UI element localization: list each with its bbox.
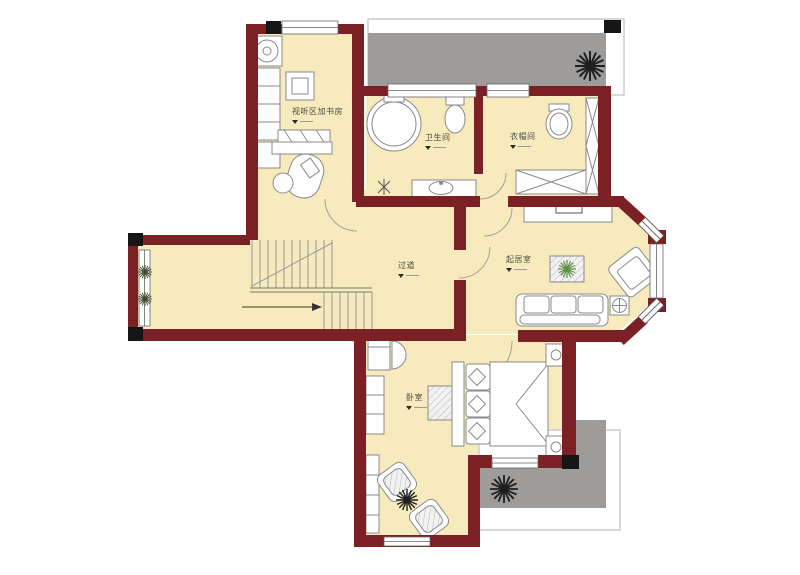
- wardrobe-right: [586, 98, 599, 194]
- floor-plan-canvas: 视听区加书房 卫生间 衣帽间 过道 起居室 卧室: [0, 0, 800, 575]
- room-label-bedroom: 卧室: [406, 393, 427, 410]
- room-label-text: 视听区加书房: [292, 107, 343, 116]
- window: [492, 458, 538, 468]
- storage-strip: [366, 455, 379, 533]
- column: [128, 327, 143, 341]
- room-label-cloakroom: 衣帽间: [510, 132, 536, 149]
- room-label-text: 卧室: [406, 393, 423, 402]
- column: [562, 455, 579, 469]
- room-label-text: 卫生间: [425, 133, 451, 142]
- desk-chair: [273, 173, 293, 193]
- column: [604, 20, 621, 33]
- label-marker-icon: [510, 144, 536, 149]
- room-label-text: 起居室: [506, 255, 532, 264]
- label-marker-icon: [398, 273, 419, 278]
- column: [128, 233, 143, 246]
- column: [266, 21, 281, 34]
- room-label-hallway: 过道: [398, 261, 419, 278]
- sofa: [516, 294, 608, 326]
- corner-cabinet: [368, 336, 390, 370]
- bed-headboard: [452, 362, 464, 446]
- room-label-text: 衣帽间: [510, 132, 536, 141]
- room-label-living-room: 起居室: [506, 255, 532, 272]
- label-marker-icon: [292, 119, 343, 124]
- room-label-study: 视听区加书房: [292, 107, 343, 124]
- side-table-fan: [610, 296, 629, 315]
- room-label-text: 过道: [398, 261, 415, 270]
- side-table: [286, 72, 314, 100]
- toilet-bowl: [445, 105, 465, 133]
- window: [388, 84, 476, 97]
- bed-pillows: [466, 364, 490, 444]
- terrace-plant-icon: [575, 51, 605, 81]
- terrace-plant-icon: [490, 475, 518, 503]
- window: [487, 84, 529, 97]
- floor-plan-drawing: [0, 0, 800, 575]
- top-terrace: [368, 33, 606, 86]
- label-marker-icon: [425, 145, 451, 150]
- tv-cabinet-left: [366, 376, 384, 434]
- window: [384, 537, 430, 546]
- rug: [428, 386, 452, 420]
- label-marker-icon: [506, 267, 532, 272]
- label-marker-icon: [406, 405, 427, 410]
- desk-counter: [272, 142, 332, 154]
- window: [282, 21, 338, 34]
- window: [138, 250, 152, 326]
- window-plant-icon: [138, 265, 152, 279]
- round-bathtub: [367, 97, 421, 151]
- room-label-bathroom: 卫生间: [425, 133, 451, 150]
- table-plant-icon: [558, 260, 576, 278]
- window-plant-icon: [138, 292, 152, 306]
